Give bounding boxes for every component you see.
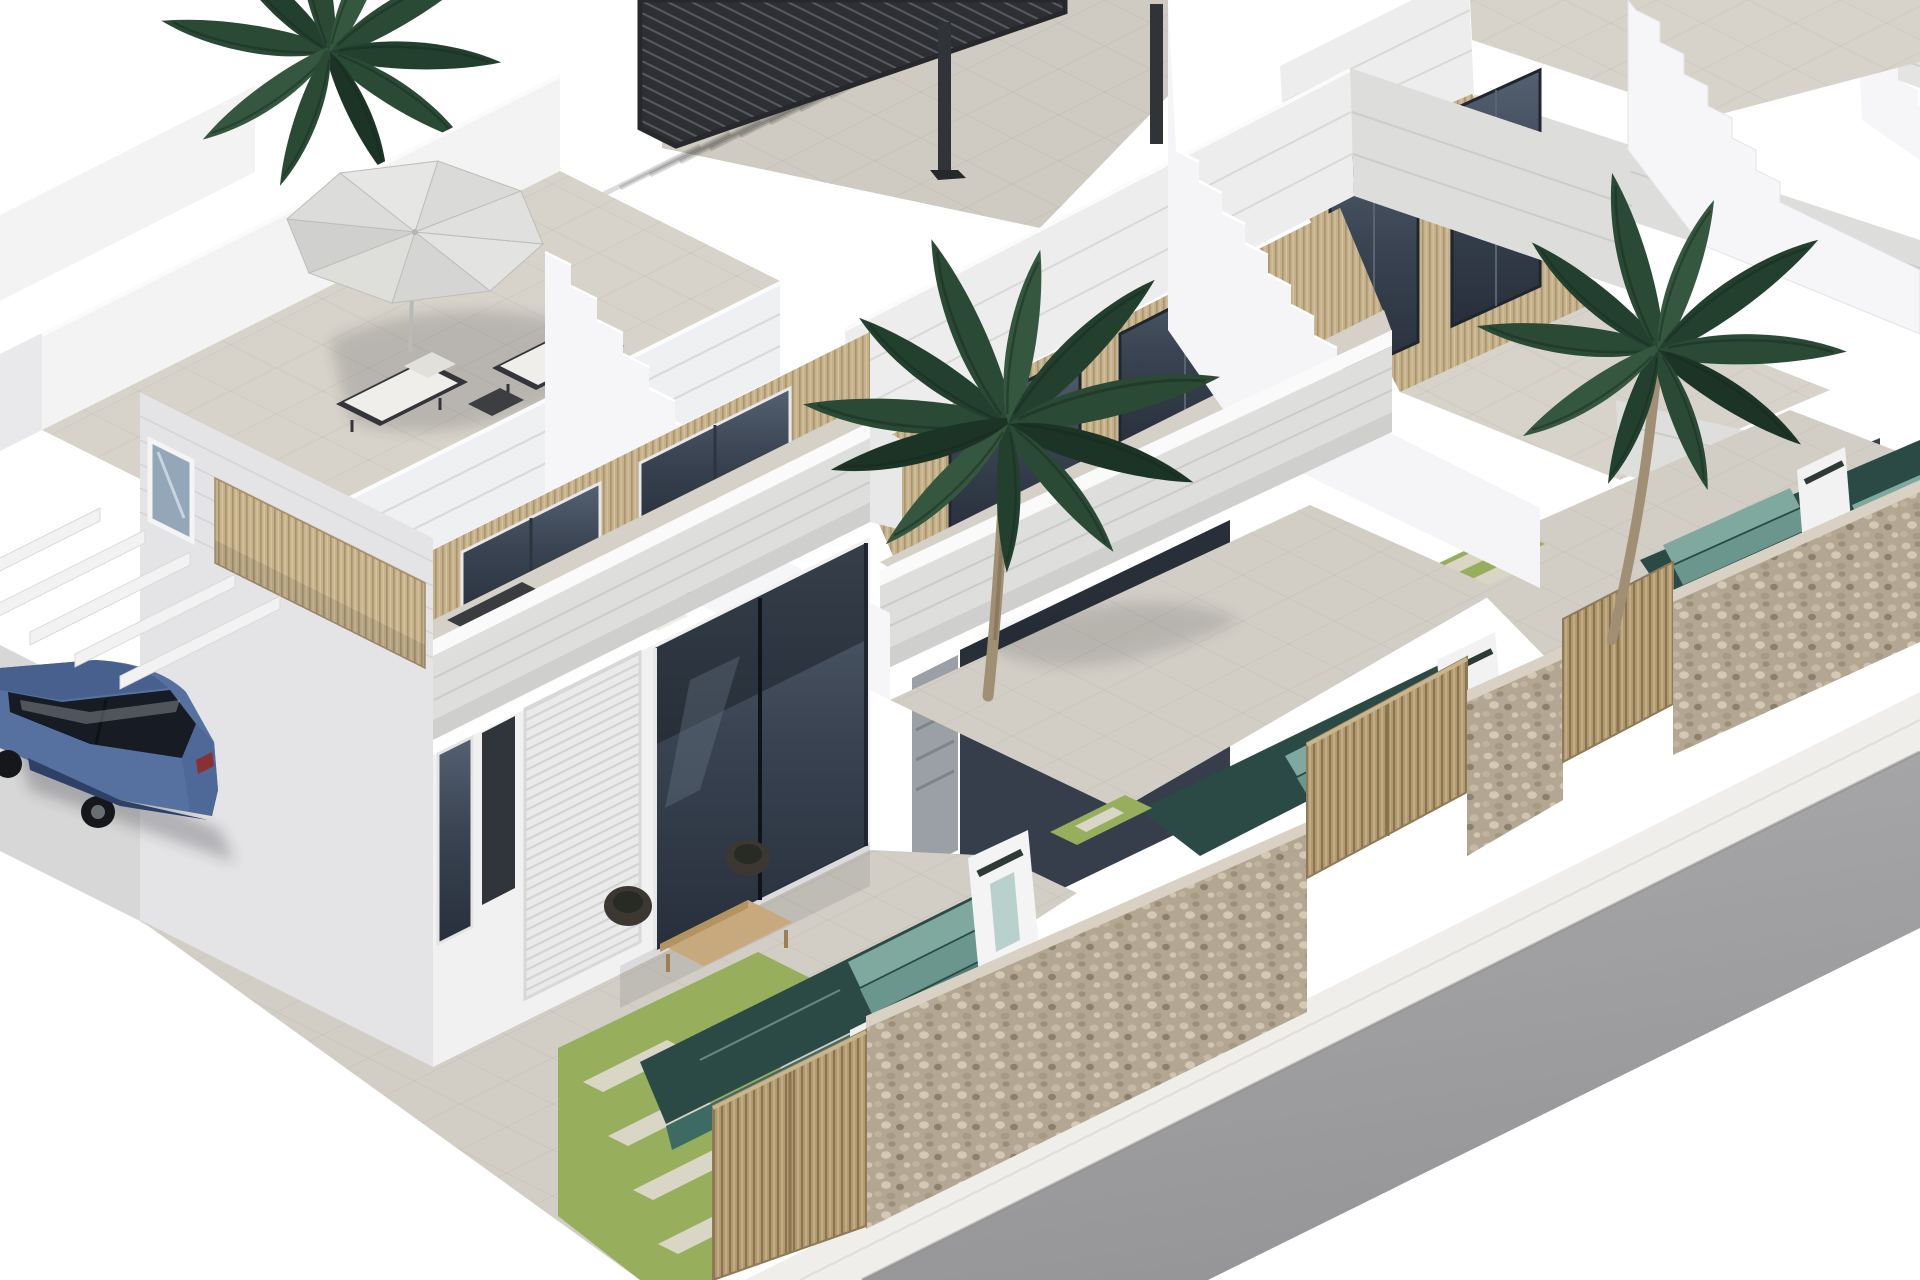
render-viewport — [0, 0, 1920, 1280]
pergola-post — [1150, 4, 1163, 144]
h1-side-window — [150, 440, 192, 541]
h1-entry-glass — [438, 737, 472, 944]
garage-door — [525, 652, 640, 999]
car-wheel-hub — [91, 805, 105, 819]
villa-render-svg — [0, 0, 1920, 1280]
h1-canopy-endcap — [870, 422, 902, 530]
pergola-post — [938, 22, 951, 174]
h1-entry-door — [482, 716, 515, 905]
